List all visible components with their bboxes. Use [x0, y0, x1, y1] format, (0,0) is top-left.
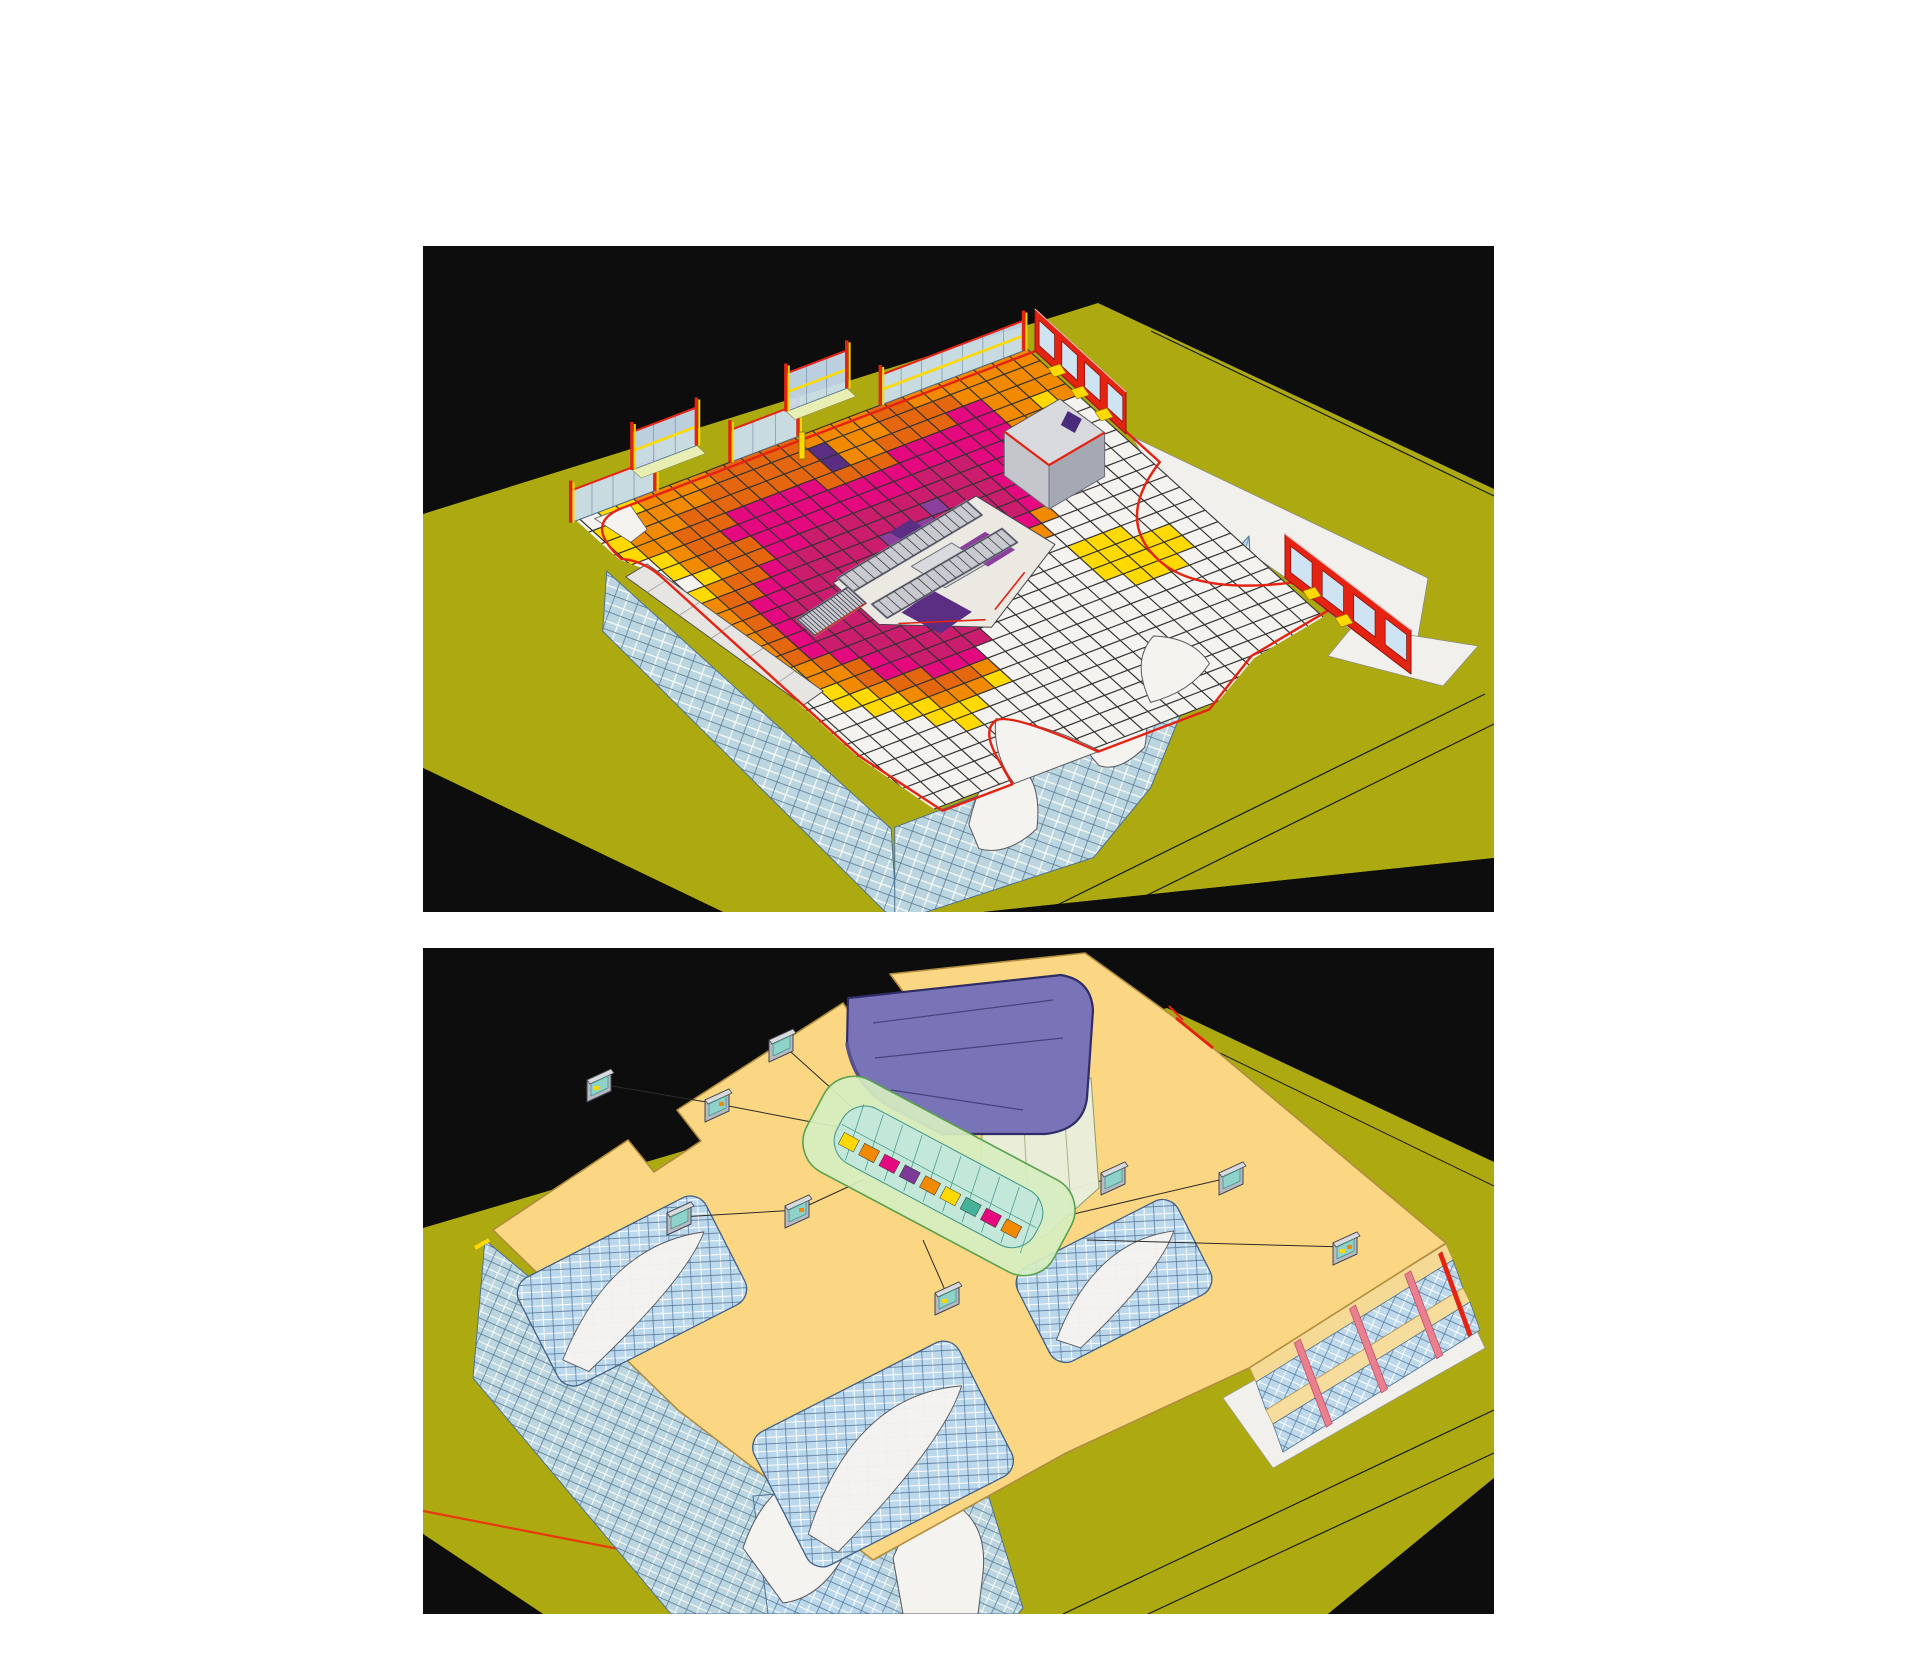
- figure-page: [0, 0, 1920, 1661]
- roof-view-svg: [423, 948, 1494, 1614]
- daylight-heatmap-svg: [423, 246, 1494, 912]
- roof-view-render-panel: [423, 948, 1494, 1614]
- daylight-heatmap-render-panel: [423, 246, 1494, 912]
- yellow-floor-post: [799, 432, 805, 459]
